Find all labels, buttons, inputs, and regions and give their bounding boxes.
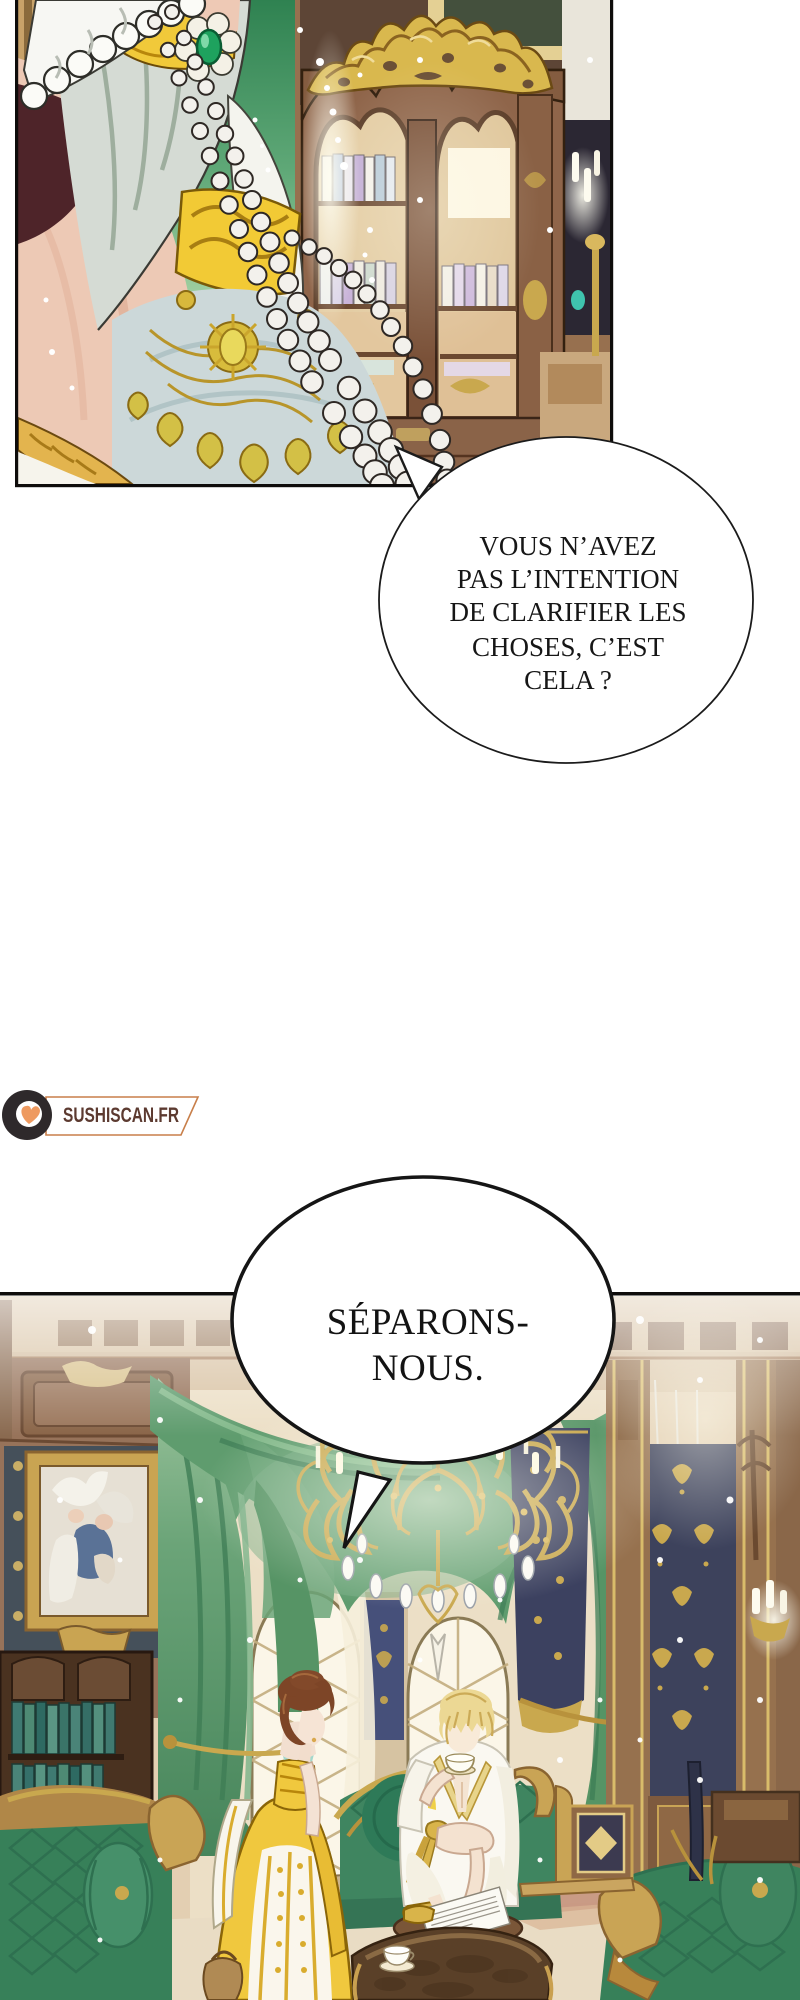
svg-text:SÉPARONS-: SÉPARONS- <box>327 1301 530 1343</box>
svg-text:CHOSES, C’EST: CHOSES, C’EST <box>472 632 665 662</box>
svg-text:VOUS N’AVEZ: VOUS N’AVEZ <box>479 531 656 561</box>
svg-text:SUSHISCAN.FR: SUSHISCAN.FR <box>63 1104 179 1127</box>
svg-text:CELA ?: CELA ? <box>524 665 612 695</box>
svg-text:PAS L’INTENTION: PAS L’INTENTION <box>457 564 679 594</box>
svg-text:NOUS.: NOUS. <box>372 1348 485 1389</box>
svg-text:DE CLARIFIER LES: DE CLARIFIER LES <box>449 597 686 627</box>
